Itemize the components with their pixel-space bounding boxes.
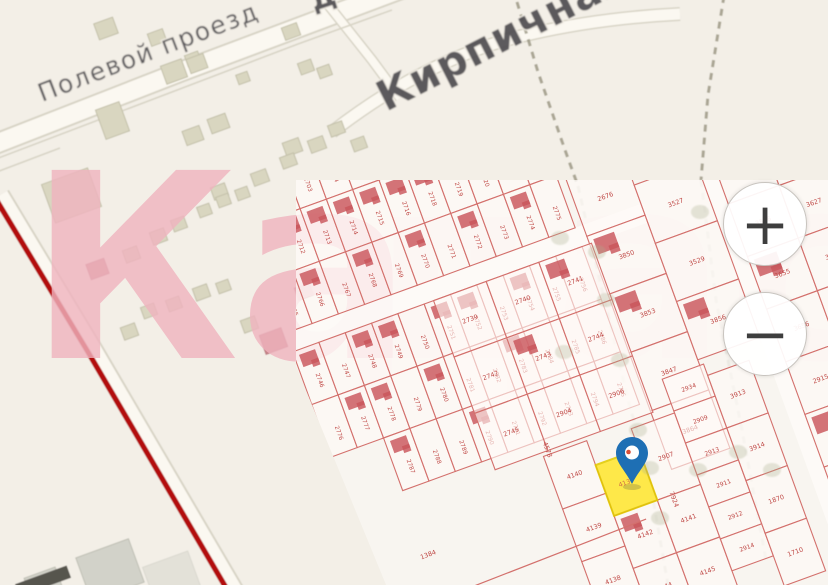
tree-smudge — [588, 245, 606, 259]
pin-shadow — [623, 484, 641, 490]
tree-smudge — [763, 463, 781, 477]
tree-smudge — [651, 511, 669, 525]
tree-smudge — [597, 293, 615, 307]
tree-smudge — [555, 345, 573, 359]
zoom-in-button[interactable]: + — [723, 182, 807, 266]
map-viewport[interactable]: Полевой проезд Кирпичная Д Ка дастр 2701… — [0, 0, 828, 585]
pin-dot — [626, 450, 631, 455]
map-canvas: Полевой проезд Кирпичная Д Ка дастр 2701… — [0, 0, 828, 585]
zoom-out-button[interactable]: − — [723, 292, 807, 376]
tree-smudge — [551, 231, 569, 245]
tree-smudge — [611, 353, 629, 367]
tree-smudge — [691, 205, 709, 219]
tree-smudge — [729, 445, 747, 459]
tree-smudge — [629, 423, 647, 437]
tree-smudge — [689, 463, 707, 477]
